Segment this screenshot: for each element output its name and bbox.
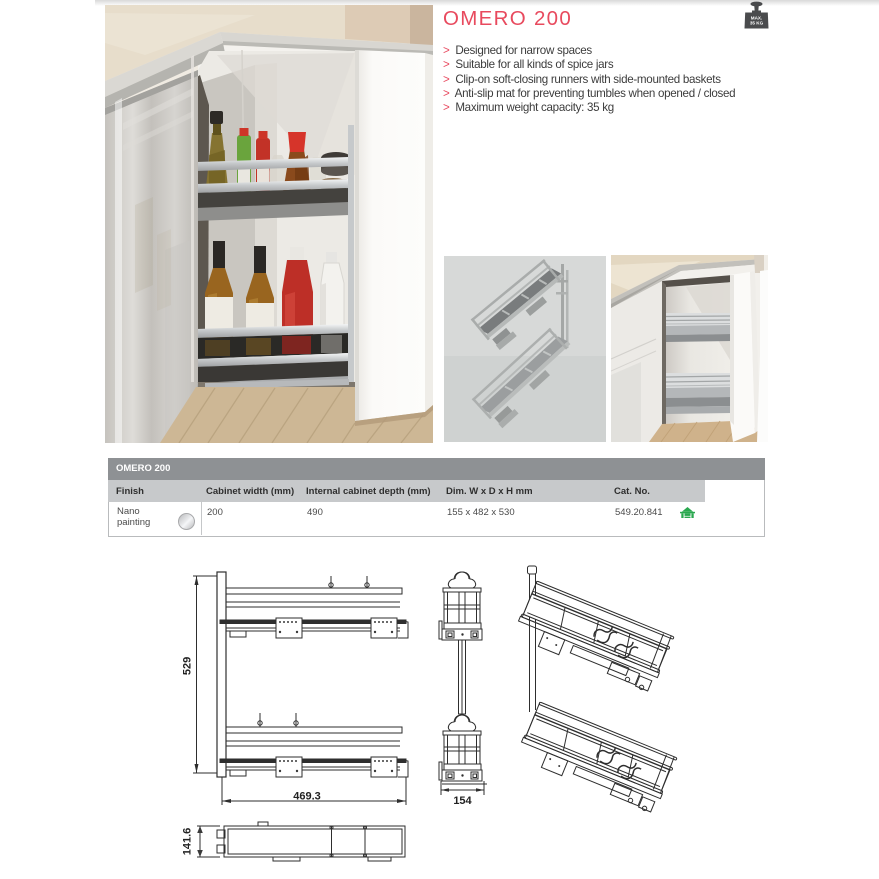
svg-text:141.6: 141.6 [182,828,194,856]
svg-text:529: 529 [182,657,194,675]
svg-text:469.3: 469.3 [293,791,321,803]
svg-text:154: 154 [453,795,472,807]
svg-text:35 KG: 35 KG [750,21,764,26]
